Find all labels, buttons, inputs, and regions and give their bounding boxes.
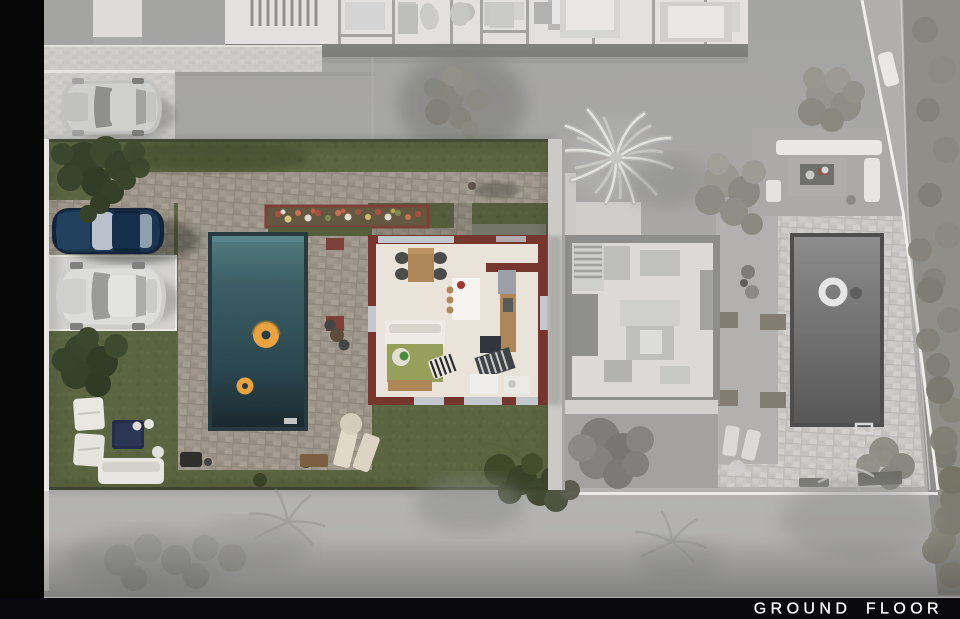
svg-text:GROUND FLOOR: GROUND FLOOR: [754, 601, 943, 618]
